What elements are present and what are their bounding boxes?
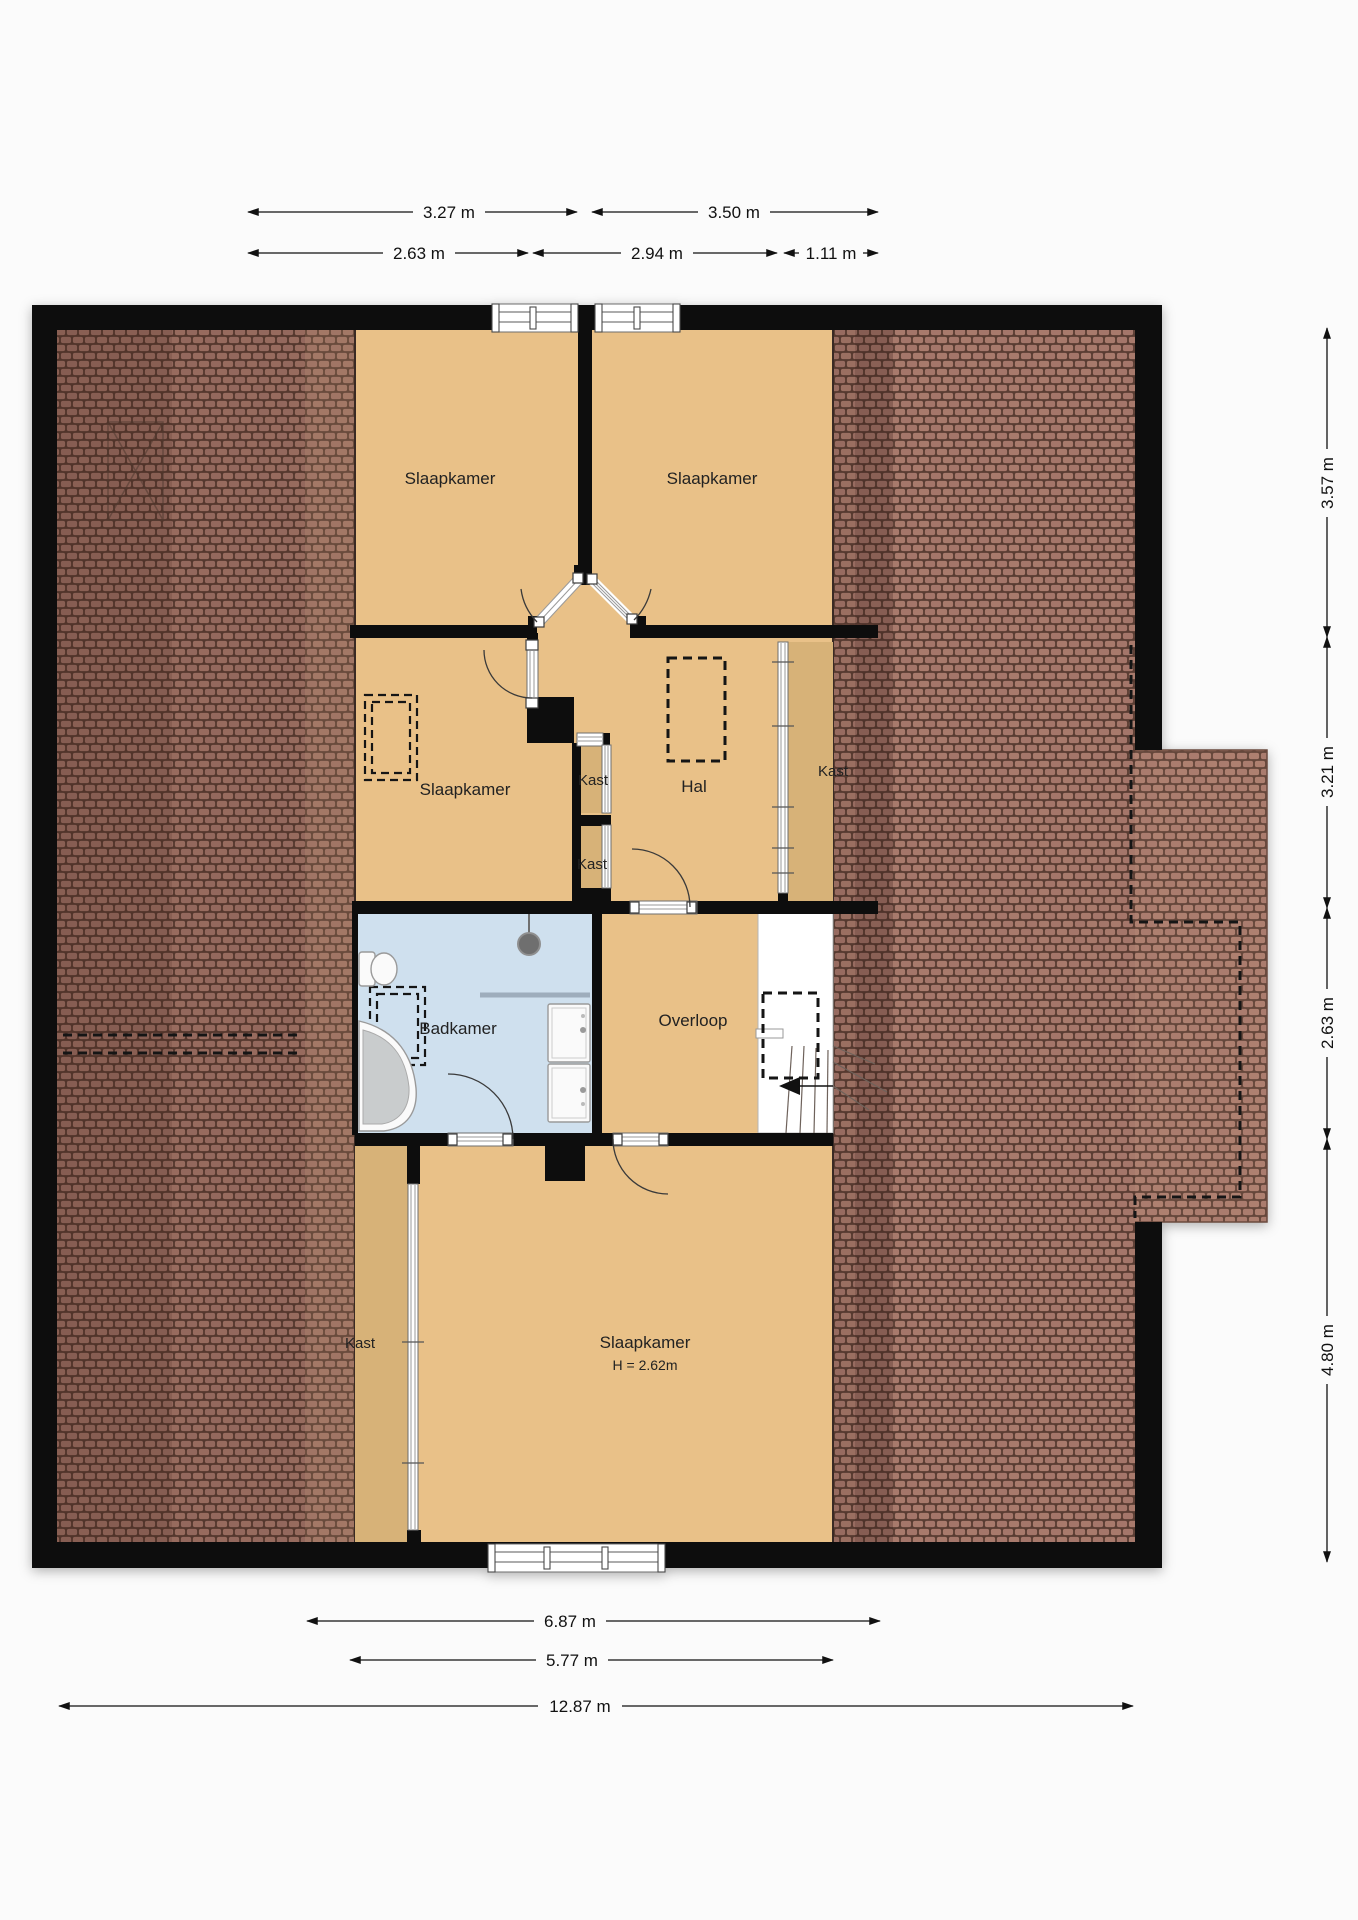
room-label-bedroom-mid-left: Slaapkamer xyxy=(420,780,511,799)
building: Slaapkamer Slaapkamer Slaapkamer Kast Ka… xyxy=(32,304,1267,1572)
room-label-closet-right: Kast xyxy=(818,763,849,780)
room-label-closet-hall-lower: Kast xyxy=(577,856,608,873)
right-roof xyxy=(833,330,1135,1542)
window-top-right xyxy=(595,304,680,332)
toilet-icon xyxy=(359,952,397,986)
room-label-bedroom-bottom: Slaapkamer xyxy=(600,1333,691,1352)
dim-bottom-12-87: 12.87 m xyxy=(549,1697,610,1716)
dim-bottom-6-87: 6.87 m xyxy=(544,1612,596,1631)
dim-top-2-94: 2.94 m xyxy=(631,244,683,263)
room-label-bedroom-top-right: Slaapkamer xyxy=(667,469,758,488)
left-roof xyxy=(57,330,355,1542)
window-bottom xyxy=(488,1544,665,1572)
dim-right-4-80: 4.80 m xyxy=(1318,1324,1337,1376)
floor-plan-page: Slaapkamer Slaapkamer Slaapkamer Kast Ka… xyxy=(0,0,1358,1920)
room-label-bedroom-bottom-height: H = 2.62m xyxy=(613,1357,678,1373)
room-label-closet-hall-upper: Kast xyxy=(578,772,609,789)
door-closet-hall-top xyxy=(577,733,603,746)
dim-right-3-21: 3.21 m xyxy=(1318,746,1337,798)
room-label-landing: Overloop xyxy=(659,1011,728,1030)
stairs-landing xyxy=(756,1029,783,1038)
dim-top-3-50: 3.50 m xyxy=(708,203,760,222)
dim-top-3-27: 3.27 m xyxy=(423,203,475,222)
dim-right-2-63: 2.63 m xyxy=(1318,997,1337,1049)
dim-right-3-57: 3.57 m xyxy=(1318,457,1337,509)
dim-top-1-11: 1.11 m xyxy=(806,244,857,263)
room-label-bedroom-top-left: Slaapkamer xyxy=(405,469,496,488)
window-top-left xyxy=(492,304,578,332)
dim-bottom-5-77: 5.77 m xyxy=(546,1651,598,1670)
room-label-hall: Hal xyxy=(681,777,707,796)
floor-plan-svg: Slaapkamer Slaapkamer Slaapkamer Kast Ka… xyxy=(0,0,1358,1920)
roof-extension xyxy=(1135,750,1267,1222)
dim-top-2-63: 2.63 m xyxy=(393,244,445,263)
room-label-bathroom: Badkamer xyxy=(419,1019,497,1038)
room-label-closet-bottom-left: Kast xyxy=(345,1335,376,1352)
